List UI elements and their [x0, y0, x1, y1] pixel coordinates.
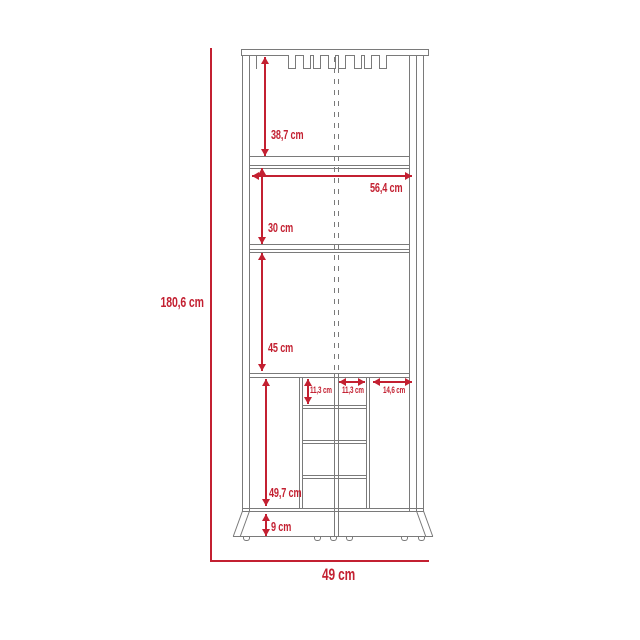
stemware-slot: [313, 55, 321, 69]
center-partition-line: [338, 373, 339, 536]
dim-label-rack-side-width: 14,6 cm: [383, 386, 405, 395]
right-panel-outer-line: [423, 55, 424, 511]
stemware-slot: [303, 55, 311, 69]
center-dashed-line: [334, 57, 335, 373]
dim-label-rack-center-width: 11,3 cm: [342, 386, 364, 395]
stemware-slot: [364, 55, 372, 69]
wine-rack-shelf-line: [302, 478, 366, 479]
shelf-line: [250, 156, 409, 157]
dim-arrow-rack-row-height: [307, 379, 309, 404]
dim-label-lower-section: 45 cm: [268, 341, 293, 354]
dim-label-overall-height: 180,6 cm: [161, 295, 204, 310]
dim-label-rack-row-height: 11,3 cm: [310, 386, 332, 395]
dim-label-base-height: 9 cm: [271, 520, 291, 533]
leveling-foot: [346, 537, 353, 541]
leveling-foot: [243, 537, 250, 541]
leveling-foot: [401, 537, 408, 541]
top-board-upper-edge: [241, 49, 429, 50]
left-rack-frame-line: [256, 55, 257, 69]
dim-arrow-base-height: [265, 514, 267, 536]
wine-rack-shelf-line: [302, 405, 366, 406]
left-panel-outer-line: [242, 55, 243, 511]
left-panel-inner-line: [249, 55, 250, 511]
dim-arrow-lower-section: [261, 253, 263, 371]
wine-rack-partition-line: [369, 377, 370, 508]
shelf-line: [250, 244, 409, 245]
dim-line-overall-width: [210, 560, 429, 562]
dim-label-overall-width: 49 cm: [322, 566, 355, 583]
shelf-line: [250, 373, 409, 374]
wine-rack-shelf-line: [302, 475, 366, 476]
center-partition-line: [334, 373, 335, 536]
right-panel-mid-line: [416, 55, 417, 511]
stemware-slot: [338, 55, 346, 69]
dim-arrow-bottom-section: [265, 379, 267, 506]
top-board-right-end: [428, 49, 429, 56]
shelf-line: [250, 249, 409, 250]
wine-rack-shelf-line: [302, 443, 366, 444]
leveling-foot: [418, 537, 425, 541]
dim-label-interior-width: 56,4 cm: [370, 181, 402, 194]
dim-arrow-rack-side-width: [373, 381, 412, 383]
bottom-panel-line: [242, 508, 424, 509]
dim-line-overall-height: [210, 48, 212, 562]
leveling-foot: [314, 537, 321, 541]
dim-arrow-top-section: [264, 57, 266, 156]
dim-label-bottom-section: 49,7 cm: [269, 486, 301, 499]
dim-label-middle-section: 30 cm: [268, 221, 293, 234]
shelf-line: [250, 165, 409, 166]
wine-rack-shelf-line: [302, 440, 366, 441]
stemware-slot: [288, 55, 296, 69]
dim-arrow-interior-width: [252, 175, 412, 177]
stemware-slot: [354, 55, 362, 69]
shelf-line: [250, 168, 409, 169]
wine-rack-shelf-line: [302, 408, 366, 409]
right-panel-inner-line: [409, 55, 410, 511]
dim-arrow-middle-section: [261, 168, 263, 244]
leveling-foot: [330, 537, 337, 541]
dim-arrow-rack-center-width: [339, 381, 365, 383]
furniture-dimension-diagram: 180,6 cm 49 cm 38,7 cm 56,4 cm 30 cm 45 …: [0, 0, 640, 640]
wine-rack-partition-line: [366, 377, 367, 508]
dim-label-top-section: 38,7 cm: [271, 128, 303, 141]
shelf-line: [250, 252, 409, 253]
bottom-panel-line: [242, 511, 424, 512]
center-dashed-line: [338, 57, 339, 373]
shelf-line: [250, 377, 409, 378]
stemware-slot: [379, 55, 387, 69]
